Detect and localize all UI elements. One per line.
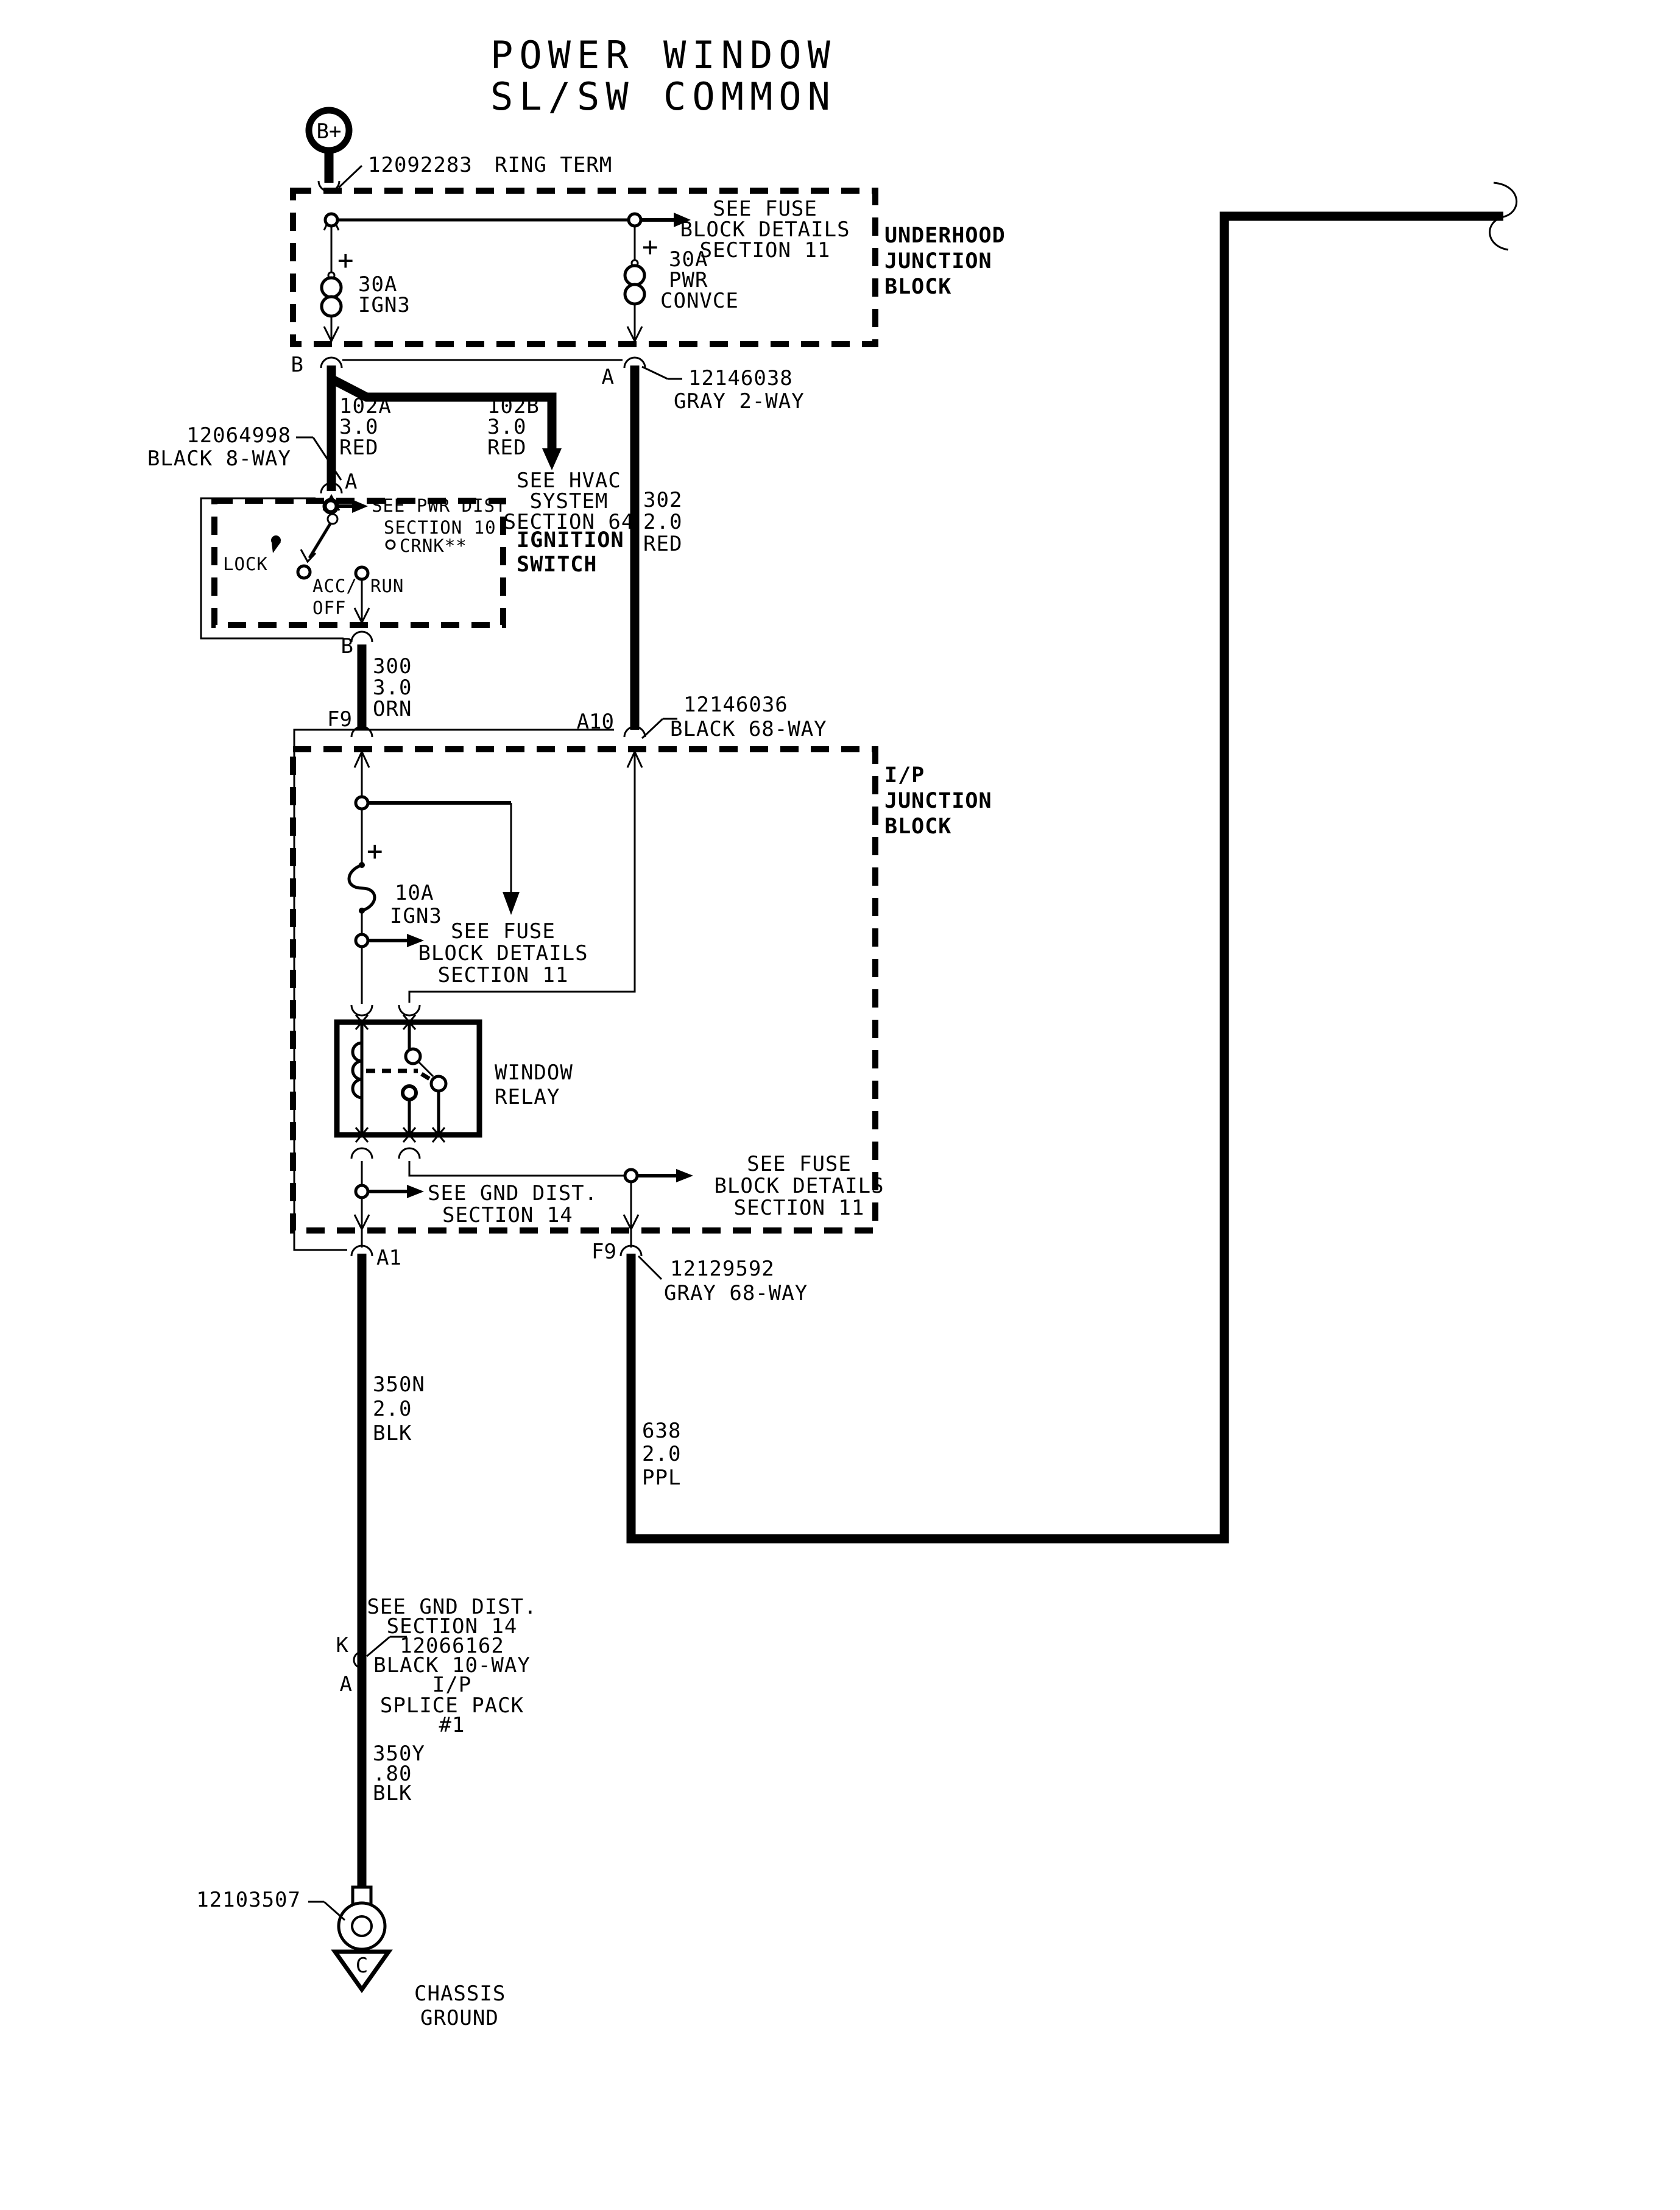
ignition-switch-name-2: SWITCH	[517, 552, 597, 577]
power-window-schematic: POWER WINDOW SL/SW COMMON B+ 12092283 RI…	[0, 0, 1680, 2210]
battery-feed: B+ 12092283 RING TERM	[309, 110, 612, 191]
connector-part-number: 12146036	[683, 693, 788, 717]
connector-description: GRAY 68-WAY	[664, 1281, 808, 1305]
wire-300-color: ORN	[373, 697, 412, 721]
wire-638-circuit: 638	[642, 1419, 681, 1443]
terminal-f9b-label: F9	[591, 1240, 616, 1264]
ring-term-part-number: 12092283	[368, 153, 473, 177]
relay-pivot-contact	[406, 1049, 420, 1064]
underhood-block-name-3: BLOCK	[884, 275, 951, 299]
relay-lever-contact	[431, 1076, 446, 1091]
switch-lever	[309, 524, 330, 558]
connector-12064998: 12064998 BLACK 8-WAY A	[147, 423, 358, 494]
connector-description: BLACK 8-WAY	[147, 447, 291, 471]
relay-coil-out-hook	[351, 1148, 372, 1159]
terminal-a10-label: A10	[577, 710, 614, 734]
wire-350n-gauge: 2.0	[373, 1397, 412, 1421]
terminal-a1-label: A1	[376, 1246, 401, 1270]
acc-label: ACC/	[312, 576, 358, 596]
connector-description: BLACK 68-WAY	[670, 717, 827, 741]
ip-see-fuse-mid-3: SECTION 11	[438, 963, 569, 987]
title-line-2: SL/SW COMMON	[490, 74, 836, 119]
see-gnd-arrow	[407, 1185, 424, 1198]
ip-connector-bracket	[294, 730, 614, 1250]
off-label: OFF	[312, 598, 346, 618]
fuse-rating: 10A	[395, 881, 434, 905]
relay-switch-in-hook	[399, 1005, 420, 1015]
uh-see-fuse-3: SECTION 11	[700, 238, 831, 263]
relay-name-1: WINDOW	[495, 1061, 573, 1085]
terminal-f9-label: F9	[327, 707, 352, 732]
ground-part-number: 12103507	[196, 1888, 301, 1912]
see-pwr-dist-2: SECTION 10	[384, 517, 496, 538]
crank-contact	[386, 540, 395, 549]
chassis-ground-label-2: GROUND	[420, 2006, 499, 2030]
underhood-block-name-1: UNDERHOOD	[884, 224, 1006, 248]
to-fuse-block-arrow	[503, 892, 520, 915]
ip-block-name-1: I/P	[884, 763, 925, 788]
lock-label: LOCK	[223, 554, 268, 574]
fuse-feed-junction	[356, 797, 368, 809]
fuse-10a-ign3: + 10A IGN3	[349, 836, 442, 928]
connector-part-number: 12064998	[186, 423, 291, 448]
wire-302: 302 2.0 RED	[635, 365, 682, 730]
connector-description: GRAY 2-WAY	[674, 389, 805, 414]
ip-see-fuse-bot-1: SEE FUSE	[747, 1152, 852, 1176]
relay-name-2: RELAY	[495, 1085, 560, 1109]
relay-switch-out-hook	[399, 1148, 420, 1159]
wire-102a-color: RED	[339, 436, 378, 460]
title-line-1: POWER WINDOW	[490, 33, 836, 77]
f9-out-junction	[625, 1170, 637, 1182]
wire-350n-color: BLK	[373, 1421, 412, 1446]
run-label: RUN	[370, 576, 404, 596]
see-fuse-junction	[356, 934, 368, 947]
underhood-junction-block: UNDERHOOD JUNCTION BLOCK SEE FUSE BLOCK …	[293, 191, 1006, 344]
diagram-title: POWER WINDOW SL/SW COMMON	[490, 33, 836, 119]
window-relay: WINDOW RELAY	[337, 1015, 573, 1142]
ign-terminal-a-label: A	[345, 470, 357, 494]
crank-label: CRNK**	[400, 535, 467, 556]
wire-302-color: RED	[643, 532, 682, 556]
connector-12129592: A1 F9 12129592 GRAY 68-WAY	[351, 1240, 808, 1305]
chassis-ground-label-1: CHASSIS	[414, 1982, 506, 2006]
wire-302-gauge: 2.0	[643, 510, 682, 534]
ip-block-name-3: BLOCK	[884, 814, 951, 839]
acc-off-contact	[298, 566, 310, 578]
fuse-pwr-name-2: CONVCE	[660, 289, 739, 313]
chassis-ground: 12103507 C CHASSIS GROUND	[196, 1887, 506, 2030]
see-pwr-dist-arrow	[352, 500, 368, 513]
splice-terminal-a: A	[340, 1672, 352, 1696]
ring-term-name: RING TERM	[495, 153, 612, 177]
terminal-a-label: A	[602, 365, 614, 389]
relay-coil-in-hook	[351, 1005, 372, 1015]
ring-terminal-hole	[352, 1916, 372, 1936]
feed-contact	[325, 500, 337, 512]
ip-block-name-2: JUNCTION	[884, 789, 992, 813]
wiring-diagram-page: POWER WINDOW SL/SW COMMON B+ 12092283 RI…	[0, 0, 1680, 2210]
splice-line-7: #1	[439, 1713, 465, 1737]
ip-see-gnd-1: SEE GND DIST.	[428, 1181, 598, 1206]
ign-terminal-b-hook	[351, 632, 372, 642]
ignition-switch-name-1: IGNITION	[517, 528, 624, 552]
relay-output-contact	[403, 1086, 416, 1100]
wire-350y: 350Y .80 BLK	[373, 1742, 425, 1806]
wire-638-labels: 638 2.0 PPL	[642, 1419, 681, 1490]
bus-junction-dot-right	[629, 214, 641, 226]
wiper-pivot	[328, 514, 337, 524]
ip-see-fuse-mid-1: SEE FUSE	[451, 919, 556, 944]
ip-see-fuse-bot-2: BLOCK DETAILS	[714, 1174, 884, 1198]
wire-302-circuit: 302	[643, 488, 682, 512]
ip-see-fuse-bot-3: SECTION 11	[734, 1196, 865, 1220]
fuse-name: IGN3	[390, 904, 442, 928]
wire-300-circuit: 300	[373, 654, 412, 679]
battery-terminal-label: B+	[317, 119, 342, 144]
connector-part-number: 12146038	[688, 366, 793, 390]
fuse-plus-mark: +	[642, 231, 658, 263]
bus-junction-dot-left	[325, 214, 337, 226]
wire-102b-color: RED	[487, 436, 526, 460]
splice-terminal-k: K	[336, 1633, 349, 1657]
terminal-b-label: B	[291, 353, 303, 377]
ip-see-gnd-2: SECTION 14	[442, 1203, 573, 1227]
underhood-block-name-2: JUNCTION	[884, 249, 992, 274]
ip-see-fuse-mid-2: BLOCK DETAILS	[418, 941, 588, 966]
gnd-junction	[356, 1185, 368, 1198]
ip-junction-block: I/P JUNCTION BLOCK + 10A IGN3 SEE FUSE B…	[293, 749, 992, 1248]
ground-id-letter: C	[356, 1954, 368, 1978]
connector-part-number: 12129592	[670, 1257, 775, 1281]
fuse-30a-ign3: + 30A IGN3	[322, 245, 411, 317]
wire-300-gauge: 3.0	[373, 676, 412, 700]
to-hvac-arrow	[542, 448, 562, 470]
see-fuse-bot-arrow	[676, 1169, 693, 1182]
fuse-plus-mark: +	[337, 245, 354, 276]
fuse-ign3-name: IGN3	[358, 293, 411, 317]
ign-terminal-b-label: B	[341, 634, 353, 658]
wire-350n-circuit: 350N	[373, 1372, 425, 1397]
wire-638-color: PPL	[642, 1466, 681, 1490]
wire-350y-color: BLK	[373, 1781, 412, 1806]
see-pwr-dist-1: SEE PWR DIST	[372, 495, 507, 516]
run-contact	[356, 567, 368, 579]
wire-638-gauge: 2.0	[642, 1442, 681, 1466]
fuse-plus-mark: +	[367, 836, 383, 867]
